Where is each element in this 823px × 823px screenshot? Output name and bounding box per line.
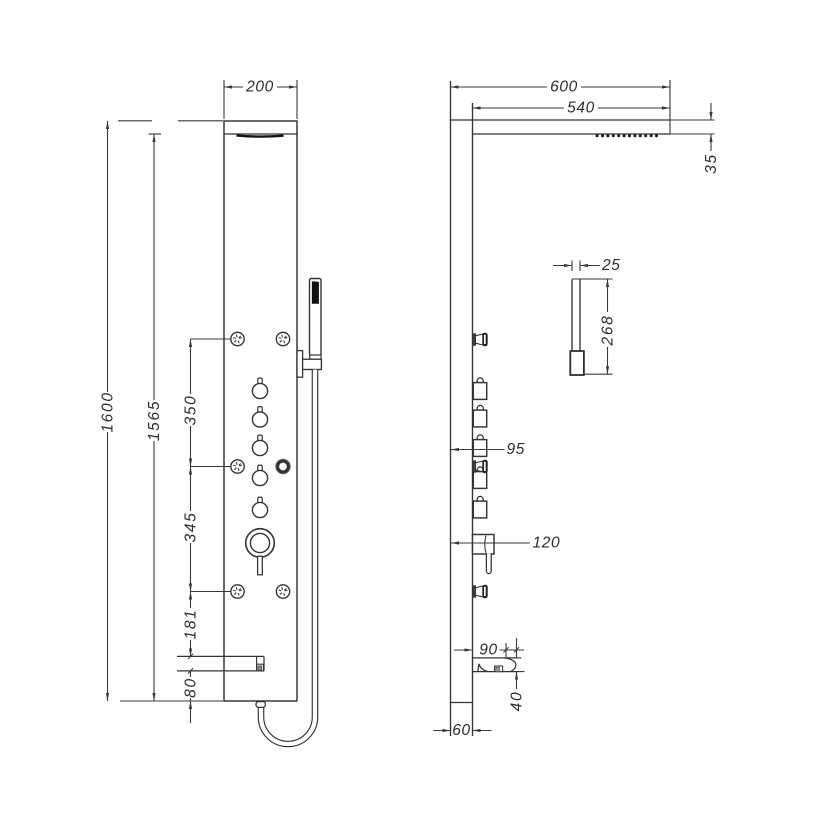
svg-text:40: 40 [509, 691, 526, 712]
svg-text:1600: 1600 [100, 391, 117, 432]
svg-text:80: 80 [183, 677, 200, 698]
svg-text:120: 120 [533, 535, 561, 552]
svg-text:268: 268 [600, 315, 617, 347]
svg-text:600: 600 [550, 79, 578, 96]
svg-text:95: 95 [507, 441, 525, 458]
svg-text:1565: 1565 [146, 400, 163, 441]
svg-text:25: 25 [601, 257, 620, 274]
svg-text:345: 345 [183, 512, 200, 543]
svg-text:35: 35 [703, 153, 720, 174]
svg-text:90: 90 [479, 642, 497, 659]
svg-text:200: 200 [245, 79, 274, 96]
svg-text:181: 181 [183, 609, 200, 640]
svg-text:60: 60 [452, 722, 470, 739]
svg-text:540: 540 [567, 100, 595, 117]
svg-text:350: 350 [183, 395, 200, 426]
